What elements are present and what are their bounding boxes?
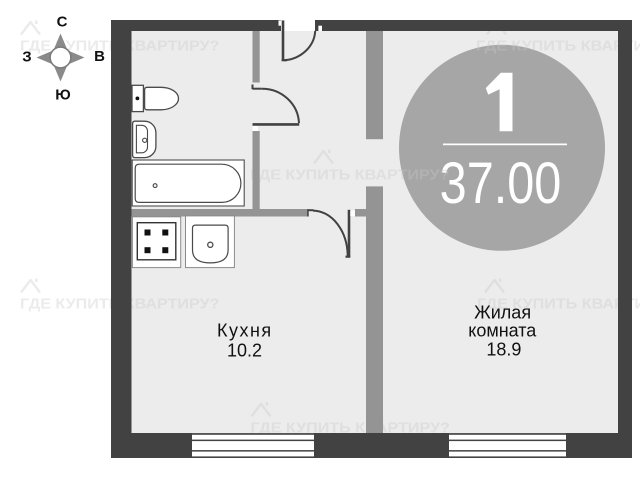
- svg-text:З: З: [22, 49, 31, 66]
- svg-text:10.2: 10.2: [227, 340, 262, 360]
- svg-text:ГДЕ КУПИТЬ КВАРТИРУ?: ГДЕ КУПИТЬ КВАРТИРУ?: [250, 167, 449, 184]
- svg-text:комната: комната: [468, 320, 537, 340]
- svg-text:Жилая: Жилая: [474, 302, 531, 322]
- svg-text:Кухня: Кухня: [217, 320, 273, 340]
- svg-text:С: С: [57, 14, 68, 31]
- svg-text:ГДЕ КУПИТЬ КВАРТИРУ?: ГДЕ КУПИТЬ КВАРТИРУ?: [476, 38, 640, 55]
- svg-text:Ю: Ю: [55, 87, 70, 104]
- svg-text:37.00: 37.00: [440, 151, 562, 216]
- svg-text:18.9: 18.9: [486, 340, 521, 360]
- svg-text:В: В: [94, 48, 105, 65]
